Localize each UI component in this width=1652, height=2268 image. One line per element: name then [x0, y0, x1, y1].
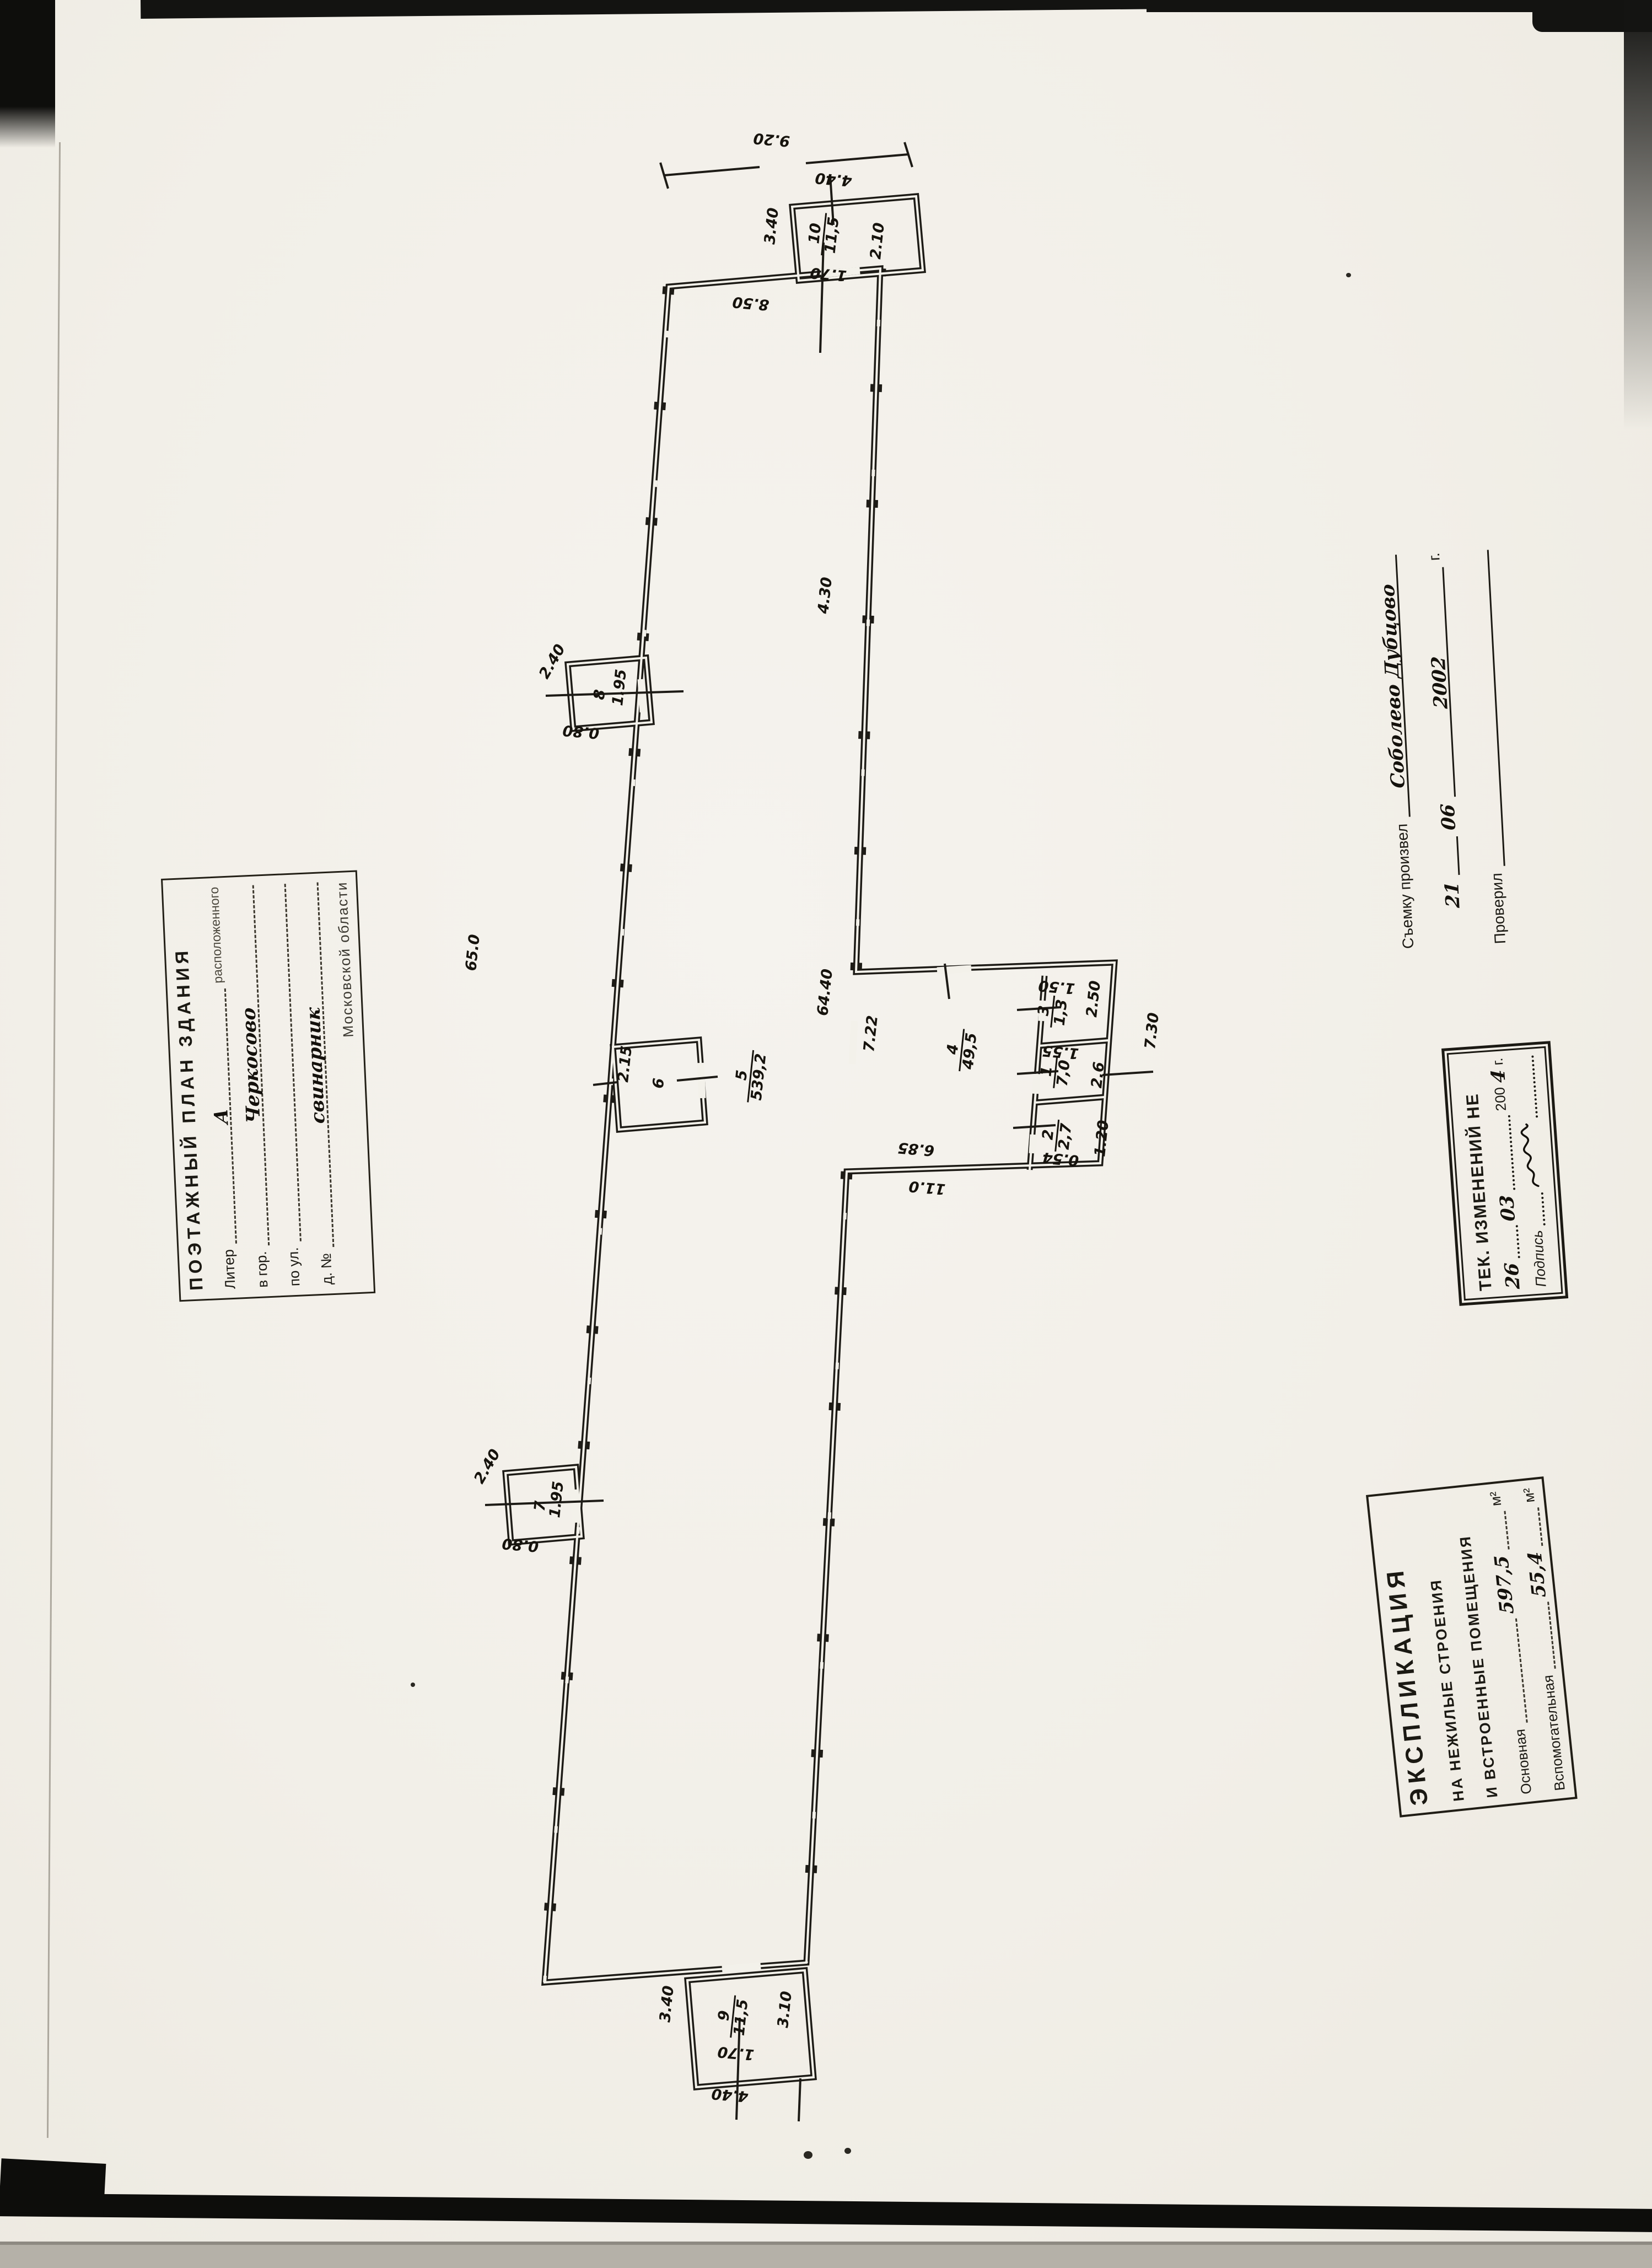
changes-year-hand: 4 — [1490, 1069, 1508, 1083]
changes-date-month: 03 — [1499, 1195, 1518, 1221]
room-number: 10 — [806, 222, 824, 244]
room-area: 1,3 — [1050, 996, 1070, 1029]
room-number: 8 — [591, 689, 609, 701]
dimension-label: 8.50 — [731, 293, 770, 314]
stamp-field-liter: Литер А расположенного — [205, 886, 239, 1289]
room-number: 9 — [716, 2010, 733, 2022]
stamp-field-house: д. № свинарник — [301, 883, 336, 1286]
field-label: по ул. — [285, 1247, 304, 1287]
dimension-label: 4.40 — [711, 2085, 749, 2105]
door-openings — [574, 271, 1043, 1969]
room-label: 3 1,3 — [1035, 994, 1070, 1029]
survey-date-month: 06 — [1439, 803, 1457, 830]
room-area: 7,0 — [1053, 1056, 1073, 1090]
dimension-label: 9.20 — [752, 130, 790, 150]
changes-stamp: ТЕК. ИЗМЕНЕНИЙ НЕ 26 03 2004 г. Подпись — [1441, 1049, 1552, 1308]
walls-inner-line — [505, 196, 1115, 2087]
surveyor-name: Соболево Дубцово — [1380, 584, 1407, 789]
survey-produced-label: Съемку произвел — [1393, 823, 1417, 949]
stamp-field-street: по ул. — [269, 884, 304, 1287]
room-number: 2 — [1040, 1129, 1057, 1141]
wall-piers — [545, 268, 880, 1982]
signature-scribble — [1520, 1122, 1543, 1189]
field-label: в гор. — [252, 1251, 271, 1288]
room-number: 5 — [734, 1069, 750, 1082]
room-number: 6 — [650, 1077, 668, 1089]
room-area: 2,7 — [1054, 1120, 1075, 1153]
room-number: 1 — [1038, 1066, 1055, 1078]
room-label: 1 7,0 — [1037, 1055, 1073, 1090]
scanned-floor-plan-sheet: 9.20 4.40 3.40 2.10 1.70 8.50 4.30 65.0 … — [0, 0, 1652, 2268]
changes-year-suffix: г. — [1489, 1057, 1506, 1066]
area-row-unit: м² — [1520, 1487, 1538, 1503]
changes-stamp-signature-row: Подпись — [1515, 1055, 1549, 1287]
field-value: свинарник — [305, 1007, 327, 1124]
signature-label: Подпись — [1529, 1229, 1549, 1287]
area-row-value: 597,5 — [1493, 1555, 1516, 1614]
survey-date-row: 21 06 2002 г. — [1424, 552, 1463, 947]
walls-outline — [505, 196, 1115, 2087]
dimension-label: 4.40 — [814, 169, 852, 190]
room-label: 10 11,5 — [805, 212, 842, 257]
room-label: 9 11,5 — [714, 1994, 751, 2039]
dimension-label: 1.50 — [1037, 977, 1075, 997]
changes-stamp-title: ТЕК. ИЗМЕНЕНИЙ НЕ — [1460, 1059, 1496, 1291]
dimension-label: 11.0 — [908, 1178, 946, 1198]
room-label: 4 49,5 — [943, 1028, 980, 1073]
changes-year-printed: 200 — [1491, 1087, 1510, 1111]
field-label: Литер — [220, 1249, 239, 1289]
window-gaps — [545, 320, 879, 1982]
survey-year-suffix: г. — [1425, 552, 1444, 561]
room-number: 3 — [1036, 1005, 1052, 1017]
survey-produced-row: Съемку произвел Соболево Дубцово — [1378, 555, 1417, 949]
dimension-label: 1.70 — [717, 2043, 755, 2063]
explication-stamp: ЭКСПЛИКАЦИЯ НА НЕЖИЛЫЕ СТРОЕНИЯ И ВСТРОЕ… — [1366, 1495, 1547, 1821]
survey-block: Съемку произвел Соболево Дубцово 21 06 2… — [1377, 556, 1493, 952]
dimension-label: 1.70 — [809, 264, 847, 284]
area-row-value: 55,4 — [1527, 1552, 1548, 1597]
survey-date-day: 21 — [1444, 882, 1462, 909]
room-label: 2 2,7 — [1039, 1118, 1075, 1153]
changes-date-day: 26 — [1503, 1262, 1522, 1289]
dimension-label: 0.80 — [501, 1535, 539, 1555]
room-number: 7 — [531, 1500, 550, 1512]
field-label: д. № — [317, 1253, 335, 1285]
dimension-label: 6.85 — [897, 1139, 935, 1159]
stamp-subtitle: расположенного — [207, 886, 226, 983]
field-value: Черкосово — [240, 1007, 262, 1124]
area-row-unit: м² — [1486, 1491, 1505, 1507]
stamp-title: ПОЭТАЖНЫЙ ПЛАН ЗДАНИЯ — [169, 888, 207, 1291]
area-row-label: Основная — [1511, 1728, 1535, 1795]
stamp-region: Московской области — [333, 881, 357, 1038]
dimension-label: 0.80 — [562, 722, 600, 742]
title-stamp: ПОЭТАЖНЫЙ ПЛАН ЗДАНИЯ Литер А расположен… — [161, 879, 359, 1303]
area-row-label: Вспомогательная — [1540, 1674, 1569, 1792]
stamp-field-city: в гор. Черкосово — [236, 885, 271, 1288]
survey-date-year: 2002 — [1430, 656, 1450, 709]
room-number: 4 — [945, 1044, 961, 1056]
survey-checked-label: Проверил — [1488, 873, 1509, 944]
field-value: А — [213, 1108, 230, 1125]
dimension-label: 2.6 — [1088, 1061, 1108, 1089]
room-label: 5 539,2 — [731, 1048, 770, 1104]
